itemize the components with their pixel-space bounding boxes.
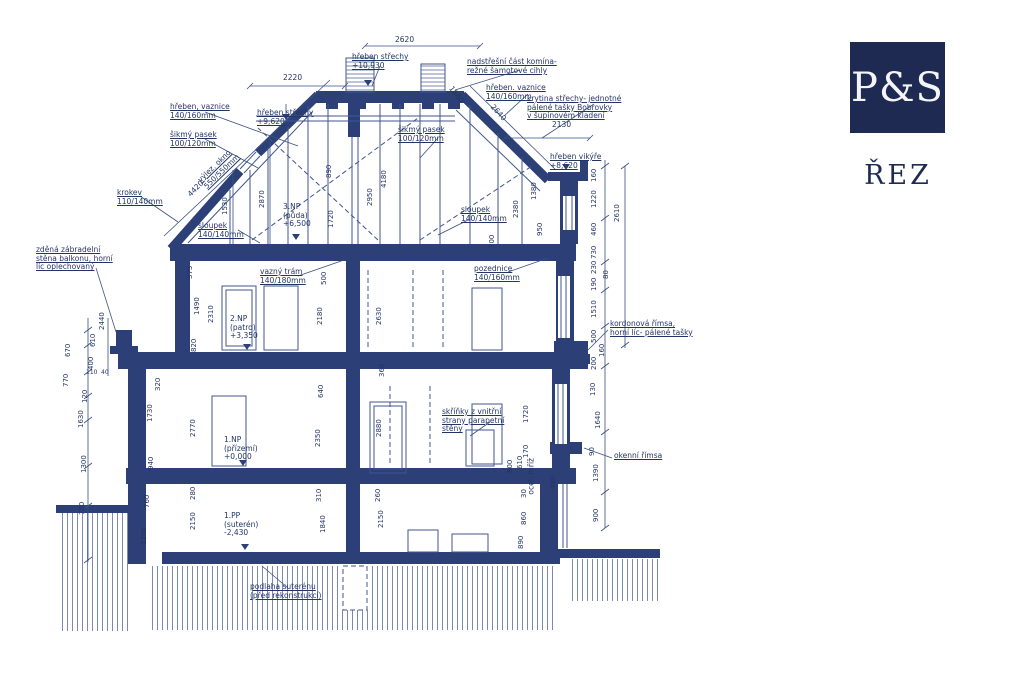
dim-label: 2770 (189, 419, 197, 437)
dim-label: 1490 (193, 297, 201, 315)
storey-label: 1.PP (suterén) -2,430 (224, 512, 258, 538)
dim-label: 190 (590, 278, 598, 291)
dim-label: 80 (602, 270, 610, 279)
company-logo: P&S (850, 42, 945, 133)
dim-label: 820 (190, 339, 198, 352)
dim-label: 610 (89, 334, 97, 347)
annotation-label: nadstřešní část komína- režné šamotové c… (467, 58, 557, 75)
dim-label: 760 (143, 495, 151, 508)
dim-label: 1220 (590, 190, 598, 208)
dim-label: 2880 (375, 419, 383, 437)
annotation-label: ocel. mříž (527, 458, 536, 495)
dim-label: 670 (64, 344, 72, 357)
storey-label: 2.NP (patro) +3,350 (230, 315, 258, 341)
dim-label: 500 (320, 272, 328, 285)
dim-label: 770 (62, 374, 70, 387)
level-label: hřeben střechy +9,620 (257, 109, 314, 126)
dim-label: 2630 (375, 307, 383, 325)
annotation-label: kordonová římsa, horní líc- pálené tašky (610, 320, 693, 337)
annotation-label: krokev 110/140mm (117, 189, 163, 206)
dim-label: 130 (589, 383, 597, 396)
dim-label: 1720 (327, 210, 335, 228)
dim-label: 320 (154, 378, 162, 391)
annotation-label: šikmý pasek 100/120mm (398, 126, 445, 143)
dim-label: 2620 (395, 35, 414, 44)
dim-label: 4180 (380, 170, 388, 188)
dim-label: 1720 (522, 405, 530, 423)
dim-label: 890 (517, 536, 525, 549)
dim-label: 400 (87, 357, 95, 370)
dim-label: 1530 (221, 197, 229, 215)
annotation-label: sloupek 140/140mm (461, 206, 507, 223)
annotation-label: krytina střechy- jednotné pálené tašky B… (527, 95, 621, 121)
storey-label: 3.NP (půda) +6,500 (283, 203, 311, 229)
dim-label: 30 (520, 489, 528, 498)
dim-label: 800 (506, 460, 514, 473)
storey-label: 1.NP (přízemí) +0,000 (224, 436, 258, 462)
annotation-label: hřeben, vaznice 140/160mm (170, 103, 230, 120)
dim-label: 40 (101, 369, 109, 376)
dim-label: 375 (186, 266, 194, 279)
dim-label: 1730 (146, 404, 154, 422)
dim-label: 500 (590, 330, 598, 343)
dim-label: 1510 (590, 300, 598, 318)
logo-monogram: P&S (851, 65, 944, 111)
dim-label: 750 (78, 502, 86, 515)
dim-label: 1390 (592, 464, 600, 482)
dim-label: 2150 (377, 510, 385, 528)
annotation-label: zděná zábradelní stěna balkonu, horní lí… (36, 246, 113, 272)
annotation-label: vazný trám 140/180mm (260, 268, 306, 285)
drawing-title: ŘEZ (846, 160, 950, 191)
dim-label: 310 (315, 489, 323, 502)
dim-label: 2870 (258, 190, 266, 208)
dim-label: 2150 (189, 512, 197, 530)
dim-label: 940 (147, 457, 155, 470)
dim-label: 640 (317, 385, 325, 398)
annotation-label: podlaha suterénu (před rekonstrukcí) (250, 583, 321, 600)
dim-label: 90 (588, 447, 596, 456)
dim-label: 2220 (283, 73, 302, 82)
dim-label: 2310 (207, 305, 215, 323)
dim-label: 860 (520, 512, 528, 525)
dim-label: 160 (590, 169, 598, 182)
dim-label: 110 (86, 369, 97, 376)
dim-label: 160 (598, 344, 606, 357)
annotation-label: pozednice 140/160mm (474, 265, 520, 282)
dim-label: 120 (81, 390, 89, 403)
dim-label: 1300 (80, 455, 88, 473)
dim-label: 950 (536, 223, 544, 236)
dim-label: 480 (549, 476, 557, 489)
dim-label: 2180 (316, 307, 324, 325)
dim-label: 280 (189, 487, 197, 500)
dim-label: 460 (590, 223, 598, 236)
dim-label: 200 (590, 357, 598, 370)
dim-label: 230 (590, 261, 598, 274)
dim-label: 2380 (512, 200, 520, 218)
section-drawing-page: hřeben, vaznice 140/160mm šikmý pasek 10… (0, 0, 1024, 683)
dim-label: 1630 (77, 410, 85, 428)
level-label: hřeben střechy +10,930 (352, 53, 409, 70)
dim-label: 1250 (140, 527, 148, 545)
dim-label: 260 (374, 489, 382, 502)
annotation-label: šikmý pasek 100/120mm (170, 131, 217, 148)
dim-label: 360 (378, 364, 386, 377)
annotation-label: okenní římsa (614, 452, 662, 461)
dim-label: 2610 (613, 204, 621, 222)
dim-label: 300 (488, 235, 496, 248)
dim-label: 1840 (319, 515, 327, 533)
dim-label: 890 (325, 165, 333, 178)
annotation-label: skříňky z vnitřní strany parapetní stěny (442, 408, 504, 434)
dim-label: 730 (590, 246, 598, 259)
annotation-label: sloupek 140/140mm (198, 222, 244, 239)
dim-label: 1640 (594, 411, 602, 429)
dim-label: 2950 (366, 188, 374, 206)
dim-label: 2350 (314, 429, 322, 447)
dim-label: 2130 (552, 120, 571, 129)
dim-label: 1380 (530, 182, 538, 200)
dim-label: 2440 (98, 312, 106, 330)
dim-label: 900 (592, 509, 600, 522)
dim-label: 610 (516, 456, 524, 469)
